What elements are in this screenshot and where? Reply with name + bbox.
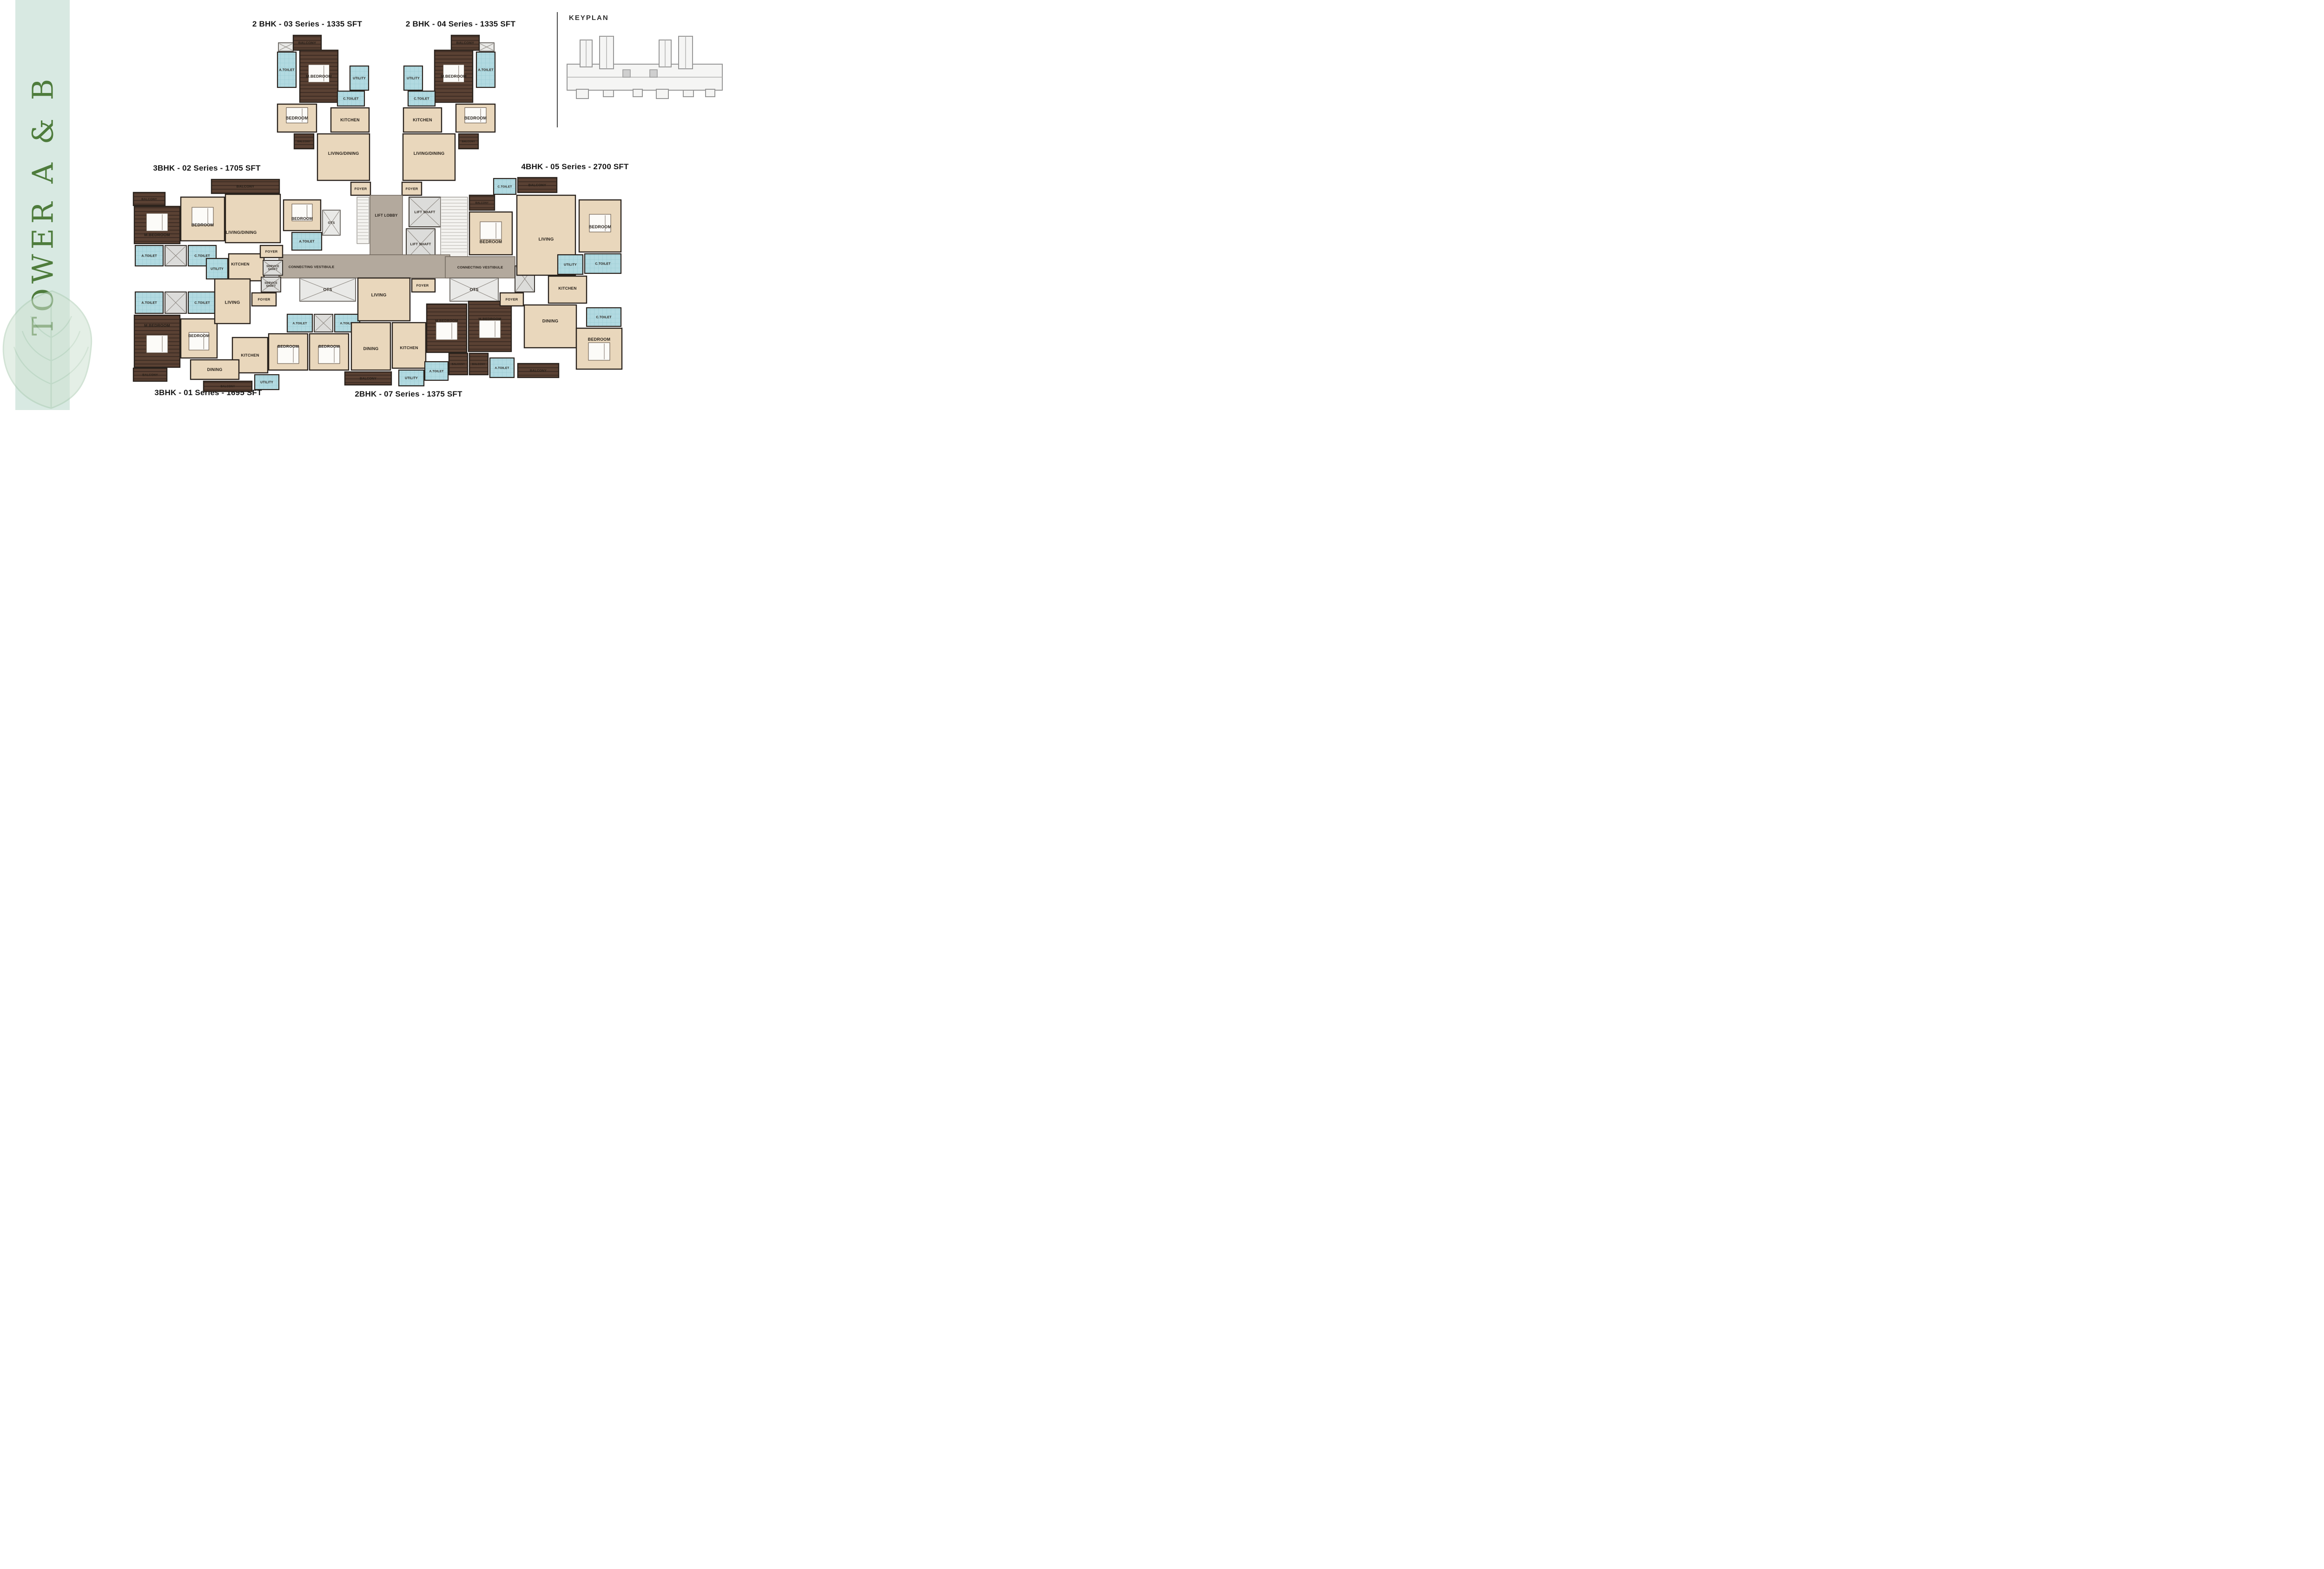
u07-balcony-bottom: BALCONY [345, 372, 391, 385]
u03-kitchen: KITCHEN [331, 108, 369, 132]
u02-balcony-top: BALCONY [211, 179, 279, 193]
u03-balcony-top: BALCONY [293, 35, 321, 50]
svg-text:LIVING/DINING: LIVING/DINING [226, 230, 257, 235]
u03-mbedroom: M.BEDROOM [300, 50, 338, 102]
svg-text:M.BEDROOM: M.BEDROOM [435, 319, 458, 323]
svg-text:C.TOILET: C.TOILET [194, 255, 210, 258]
svg-text:CONNECTING VESTIBULE: CONNECTING VESTIBULE [457, 265, 503, 270]
svg-text:BALCONY: BALCONY [456, 41, 474, 45]
svg-text:BEDROOM: BEDROOM [480, 239, 502, 244]
u05-balcony-bottom: BALCONY [518, 364, 559, 377]
svg-text:LIVING: LIVING [539, 237, 554, 242]
core-stair-right [441, 197, 468, 257]
u05-bedroom-right: BEDROOM [579, 200, 621, 252]
u01-foyer: FOYER [252, 293, 276, 306]
svg-text:DINING: DINING [363, 346, 379, 351]
u01-bedroom-mid: BEDROOM [181, 319, 217, 358]
u05-foyer: FOYER [500, 293, 523, 306]
u04-balcony-side: BALCONY [459, 134, 478, 149]
u07-kitchen: KITCHEN [392, 323, 426, 368]
floor-plan-svg: BALCONYA.TOILETM.BEDROOMUTILITYC.TOILETB… [0, 0, 729, 410]
u04-balcony-top: BALCONY [451, 35, 479, 50]
svg-text:M.BEDROOM: M.BEDROOM [478, 317, 501, 321]
u05-bedroom-core: BEDROOM [469, 212, 512, 255]
svg-text:C.TOILET: C.TOILET [497, 185, 512, 188]
u01-balcony-bottom: BALCONY [204, 381, 252, 391]
u05-bedroom-low: BEDROOM [576, 328, 622, 369]
svg-text:KITCHEN: KITCHEN [231, 262, 249, 266]
u03-balcony-side: BALCONY [294, 134, 314, 149]
u04-mbedroom: M.BEDROOM [435, 50, 473, 102]
u03-ctoilet: C.TOILET [337, 91, 364, 106]
u07-foyer: FOYER [412, 279, 435, 292]
u04-kitchen: KITCHEN [403, 108, 442, 132]
u05-ctoilet-right: C.TOILET [585, 254, 621, 273]
u02-balcony-left: BALCONY [133, 192, 165, 205]
svg-text:FOYER: FOYER [406, 187, 418, 191]
svg-text:BEDROOM: BEDROOM [318, 344, 340, 349]
svg-text:FOYER: FOYER [506, 298, 518, 302]
u02-serviceshaft-2: SERVICESHAFT [261, 277, 281, 292]
u02-bedroom-mid: BEDROOM [284, 200, 321, 231]
u07-mbedroom: M.BEDROOM [427, 304, 467, 352]
svg-text:LIVING/DINING: LIVING/DINING [328, 151, 359, 156]
svg-text:A.TOILET: A.TOILET [478, 69, 494, 72]
u01-balcony-left: BALCONY [133, 368, 167, 381]
svg-text:A.TOILET: A.TOILET [141, 302, 157, 305]
ots-right: OTS [450, 278, 498, 301]
svg-text:C.TOILET: C.TOILET [595, 263, 611, 266]
svg-text:BALCONY: BALCONY [475, 202, 489, 205]
svg-text:BEDROOM: BEDROOM [589, 225, 611, 229]
u04-ots-shaft [479, 43, 494, 51]
svg-text:KITCHEN: KITCHEN [241, 353, 259, 357]
u03-ots-shaft [278, 43, 293, 51]
u01-shaft [165, 292, 186, 313]
u02-foyer: FOYER [260, 245, 283, 258]
u04-foyer: FOYER [402, 182, 422, 195]
svg-text:CONNECTING VESTIBULE: CONNECTING VESTIBULE [289, 265, 335, 269]
u07-utility: UTILITY [399, 370, 424, 386]
svg-text:UTILITY: UTILITY [353, 77, 366, 80]
svg-text:BALCONY: BALCONY [141, 198, 157, 201]
svg-text:SERVICESHAFT: SERVICESHAFT [266, 265, 279, 271]
u02-ots: OTS [323, 210, 340, 235]
svg-text:C.TOILET: C.TOILET [194, 302, 210, 305]
u07-living: LIVING [358, 278, 410, 321]
svg-text:C.TOILET: C.TOILET [343, 98, 359, 101]
u05-dining: DINING [524, 305, 576, 348]
u01-dining: DINING [191, 360, 239, 379]
u02-mbedroom: M.BEDROOM [134, 206, 180, 244]
svg-text:BALCONY: BALCONY [298, 41, 316, 45]
u07-dining: DINING [351, 323, 390, 370]
u02-bedroom-top: BEDROOM [181, 197, 224, 241]
svg-text:UTILITY: UTILITY [405, 377, 418, 380]
svg-text:BALCONY: BALCONY [530, 370, 547, 373]
svg-text:KITCHEN: KITCHEN [413, 118, 432, 122]
svg-text:BALCONY: BALCONY [452, 363, 465, 366]
u05-balcony-small: BALCONY [469, 353, 488, 375]
u05-balcony-top: BALCONY [518, 178, 557, 192]
svg-text:M.BEDROOM: M.BEDROOM [306, 74, 332, 79]
svg-text:OTS: OTS [469, 287, 478, 292]
u07-shaft [314, 314, 333, 332]
svg-text:BEDROOM: BEDROOM [286, 116, 308, 120]
svg-text:UTILITY: UTILITY [260, 381, 273, 384]
svg-text:BALCONY: BALCONY [472, 363, 486, 366]
svg-text:LIFT SHAFT: LIFT SHAFT [410, 242, 431, 246]
svg-text:FOYER: FOYER [416, 284, 429, 288]
u04-bedroom: BEDROOM [456, 104, 495, 132]
svg-text:LIFT LOBBY: LIFT LOBBY [375, 213, 398, 218]
u01-bedroom-right: BEDROOM [269, 334, 308, 370]
svg-text:M.BEDROOM: M.BEDROOM [441, 74, 467, 79]
tower-ab-floorplan-page: TOWER A & B KEYPLAN [0, 0, 729, 410]
svg-text:A.TOILET: A.TOILET [141, 255, 157, 258]
u05-utility: UTILITY [558, 255, 583, 274]
svg-text:LIVING: LIVING [225, 300, 240, 305]
vestibule-left: CONNECTING VESTIBULE [279, 255, 450, 278]
svg-text:LIFT SHAFT: LIFT SHAFT [415, 210, 436, 214]
ots-left: OTS [300, 278, 356, 301]
u05-atoilet: A.TOILET [490, 358, 514, 377]
svg-text:M.BEDROOM: M.BEDROOM [144, 323, 170, 328]
svg-text:BEDROOM: BEDROOM [588, 337, 610, 342]
u01-ctoilet: C.TOILET [188, 292, 216, 313]
svg-text:BALCONY: BALCONY [142, 373, 158, 377]
svg-text:BEDROOM: BEDROOM [277, 344, 299, 349]
svg-text:UTILITY: UTILITY [211, 268, 224, 271]
u05-ctoilet-top: C.TOILET [494, 179, 516, 194]
svg-text:BALCONY: BALCONY [528, 183, 546, 187]
lift-shaft-1: LIFT SHAFT [409, 197, 441, 227]
svg-text:FOYER: FOYER [258, 298, 271, 302]
u02-livingdining: LIVING/DINING [225, 194, 280, 243]
svg-text:BALCONY: BALCONY [220, 385, 235, 388]
u01-atoilet-2: A.TOILET [287, 314, 312, 332]
svg-text:KITCHEN: KITCHEN [340, 118, 359, 122]
svg-text:A.TOILET: A.TOILET [495, 366, 509, 370]
u05-mbedroom: M.BEDROOM [469, 301, 511, 351]
svg-text:BEDROOM: BEDROOM [464, 116, 487, 120]
svg-text:A.TOILET: A.TOILET [299, 240, 315, 244]
u03-bedroom: BEDROOM [277, 104, 317, 132]
u03-foyer: FOYER [351, 182, 370, 195]
u03-atoilet: A.TOILET [277, 52, 296, 87]
svg-text:BEDROOM: BEDROOM [188, 333, 210, 338]
svg-text:BALCONY: BALCONY [237, 185, 254, 189]
svg-text:OTS: OTS [328, 222, 335, 225]
u03-utility: UTILITY [350, 66, 369, 90]
vestibule-right: CONNECTING VESTIBULE [445, 257, 515, 278]
u02-serviceshaft-1: SERVICESHAFT [263, 260, 283, 275]
u02-utility: UTILITY [206, 258, 228, 279]
svg-text:LIVING: LIVING [371, 292, 387, 298]
svg-text:FOYER: FOYER [265, 250, 278, 254]
svg-text:LIVING/DINING: LIVING/DINING [414, 151, 445, 156]
svg-text:C.TOILET: C.TOILET [414, 98, 429, 101]
svg-text:BEDROOM: BEDROOM [191, 223, 214, 227]
u03-livingdining: LIVING/DINING [317, 134, 370, 180]
u05-kitchen: KITCHEN [548, 276, 587, 303]
core-stair-left [357, 197, 369, 244]
svg-text:OTS: OTS [323, 287, 332, 292]
u05-ctoilet-low: C.TOILET [587, 308, 621, 326]
svg-text:SERVICESHAFT: SERVICESHAFT [264, 282, 277, 288]
u04-livingdining: LIVING/DINING [403, 134, 455, 180]
svg-text:KITCHEN: KITCHEN [558, 286, 576, 291]
svg-text:C.TOILET: C.TOILET [596, 316, 612, 319]
u01-utility: UTILITY [255, 375, 279, 390]
u02-shaft [165, 245, 186, 266]
svg-text:KITCHEN: KITCHEN [400, 345, 418, 350]
u02-atoilet: A.TOILET [135, 245, 163, 266]
svg-text:M.BEDROOM: M.BEDROOM [144, 232, 170, 237]
svg-text:A.TOILET: A.TOILET [279, 69, 295, 72]
svg-text:BALCONY: BALCONY [297, 140, 311, 143]
u04-ctoilet: C.TOILET [408, 91, 435, 106]
svg-text:UTILITY: UTILITY [564, 264, 577, 267]
svg-text:A.TOILET: A.TOILET [292, 322, 307, 325]
svg-text:BALCONY: BALCONY [360, 377, 376, 381]
svg-text:DINING: DINING [542, 318, 558, 324]
u02-kitchen: KITCHEN [229, 254, 264, 281]
u04-atoilet: A.TOILET [476, 52, 495, 87]
u01-mbedroom: M.BEDROOM [134, 315, 180, 367]
u05-balcony-core: BALCONY [469, 195, 495, 210]
svg-text:A.TOILET: A.TOILET [429, 370, 443, 373]
u07-bedroom: BEDROOM [310, 334, 349, 370]
u04-utility: UTILITY [404, 66, 423, 90]
u07-balcony-right: BALCONY [449, 353, 468, 375]
svg-text:BALCONY: BALCONY [462, 140, 475, 143]
svg-text:FOYER: FOYER [355, 187, 367, 191]
svg-text:DINING: DINING [207, 367, 223, 372]
svg-text:UTILITY: UTILITY [407, 77, 420, 80]
u01-living: LIVING [215, 279, 250, 324]
u02-atoilet-mid: A.TOILET [292, 232, 322, 250]
u01-atoilet: A.TOILET [135, 292, 163, 313]
svg-text:BEDROOM: BEDROOM [291, 216, 313, 221]
u07-atoilet-2: A.TOILET [425, 362, 448, 380]
